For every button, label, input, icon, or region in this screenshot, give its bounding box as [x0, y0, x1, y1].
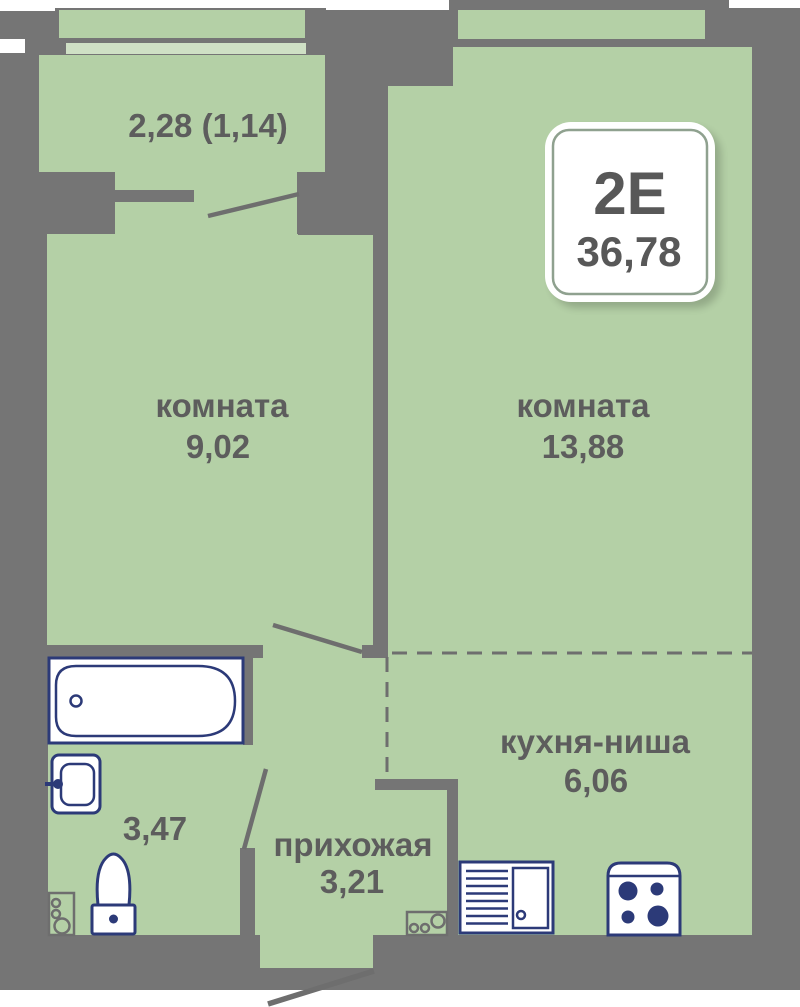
floor-plan: 2Е 36,78 2,28 (1,14) комната 9,02 комнат… [0, 0, 800, 1007]
room1-name-label: комната [155, 387, 289, 424]
stove-icon [608, 863, 680, 935]
room2-window-sill [453, 47, 752, 86]
bathtub-icon [49, 658, 243, 743]
wall-bathroom-right-lower [240, 848, 255, 935]
room2-window-glass [458, 10, 705, 39]
riser-icon [49, 893, 74, 935]
unit-badge: 2Е 36,78 [545, 122, 721, 308]
wall-hallway-right [447, 779, 458, 935]
outside-notch [326, 0, 449, 10]
total-area-label: 36,78 [576, 228, 681, 275]
kitchen-name-label: кухня-ниша [500, 723, 691, 760]
wall-hallway-top [375, 779, 458, 790]
room2-area-label: 13,88 [542, 428, 625, 465]
unit-type-label: 2Е [593, 160, 666, 227]
kitchen-area-label: 6,06 [564, 762, 628, 799]
balcony-area-label: 2,28 (1,14) [128, 107, 288, 144]
balcony-window-sill [66, 43, 306, 54]
wall-balcony-door-stub [115, 190, 194, 202]
outside-notch [729, 0, 800, 8]
room1-area-label: 9,02 [186, 428, 250, 465]
balcony-window-glass [59, 10, 305, 38]
wall-divider-stub [362, 645, 388, 658]
hallway-name-label: прихожая [273, 826, 432, 863]
kitchen-sink-icon [460, 862, 553, 933]
washing-point-icon [407, 912, 447, 935]
wall-right-top [752, 0, 800, 175]
outside-notch [0, 39, 25, 53]
wall-bathroom-top [46, 645, 263, 658]
room2-name-label: комната [516, 387, 650, 424]
wall-between-rooms [373, 173, 387, 645]
sink-icon [45, 755, 100, 813]
hallway-area-label: 3,21 [320, 863, 384, 900]
bathroom-area-label: 3,47 [123, 810, 187, 847]
entrance-floor [260, 935, 373, 968]
floor-plan-svg: 2Е 36,78 2,28 (1,14) комната 9,02 комнат… [0, 0, 800, 1007]
outside-notch [0, 0, 55, 11]
